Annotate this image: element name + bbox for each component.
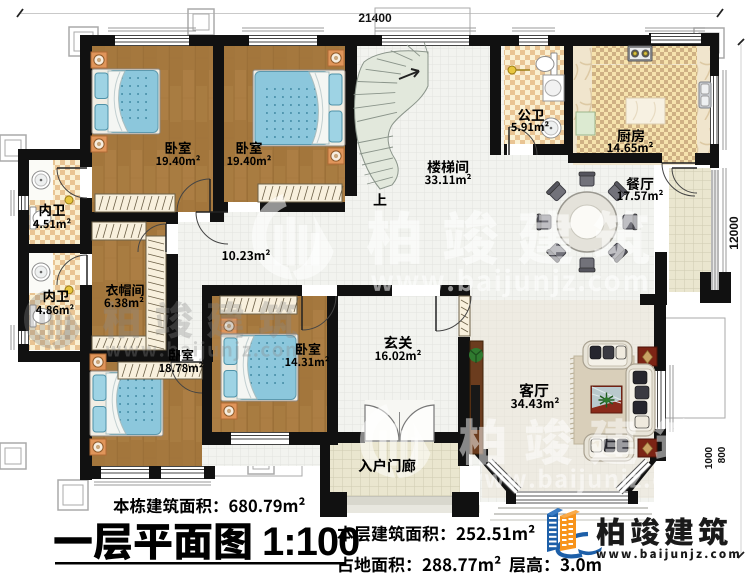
svg-text:12000: 12000 [727,216,741,250]
svg-text:800: 800 [717,446,728,463]
svg-text:1000: 1000 [704,446,715,469]
